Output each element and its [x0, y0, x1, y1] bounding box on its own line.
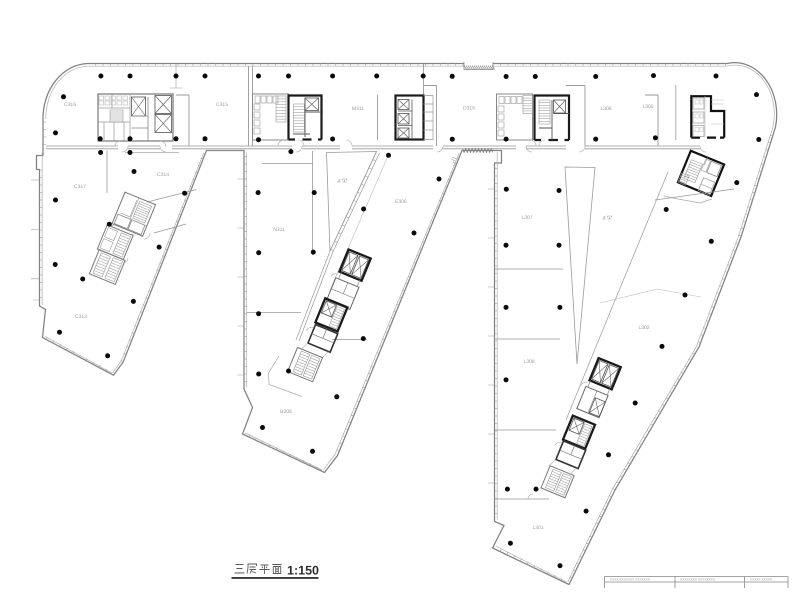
- svg-text:C313: C313: [75, 314, 87, 320]
- svg-text:D316: D316: [463, 106, 475, 112]
- svg-text:C316: C316: [64, 102, 76, 108]
- svg-text:M311: M311: [352, 106, 364, 112]
- svg-text:L307: L307: [521, 215, 532, 221]
- svg-text:C314: C314: [157, 172, 169, 178]
- svg-text:L308: L308: [523, 359, 534, 365]
- svg-text:N311: N311: [273, 227, 285, 233]
- svg-text:L305: L305: [642, 104, 653, 110]
- svg-text:B308: B308: [280, 409, 292, 415]
- svg-text:L301: L301: [532, 525, 543, 531]
- svg-text:L306: L306: [600, 106, 611, 112]
- svg-text:XXXXX XXXXX: XXXXX XXXXX: [750, 578, 773, 582]
- svg-text:C315: C315: [216, 102, 228, 108]
- svg-text:C317: C317: [74, 184, 86, 190]
- svg-text:XXXXXXXX XXXXXXXX: XXXXXXXX XXXXXXXX: [680, 578, 716, 582]
- svg-text:E306: E306: [395, 199, 407, 205]
- svg-text:XXXX XXXXXXX XXXXXXX: XXXX XXXXXXX XXXXXXX: [610, 578, 651, 582]
- svg-text:L302: L302: [638, 325, 649, 331]
- svg-text:1:150: 1:150: [287, 564, 319, 578]
